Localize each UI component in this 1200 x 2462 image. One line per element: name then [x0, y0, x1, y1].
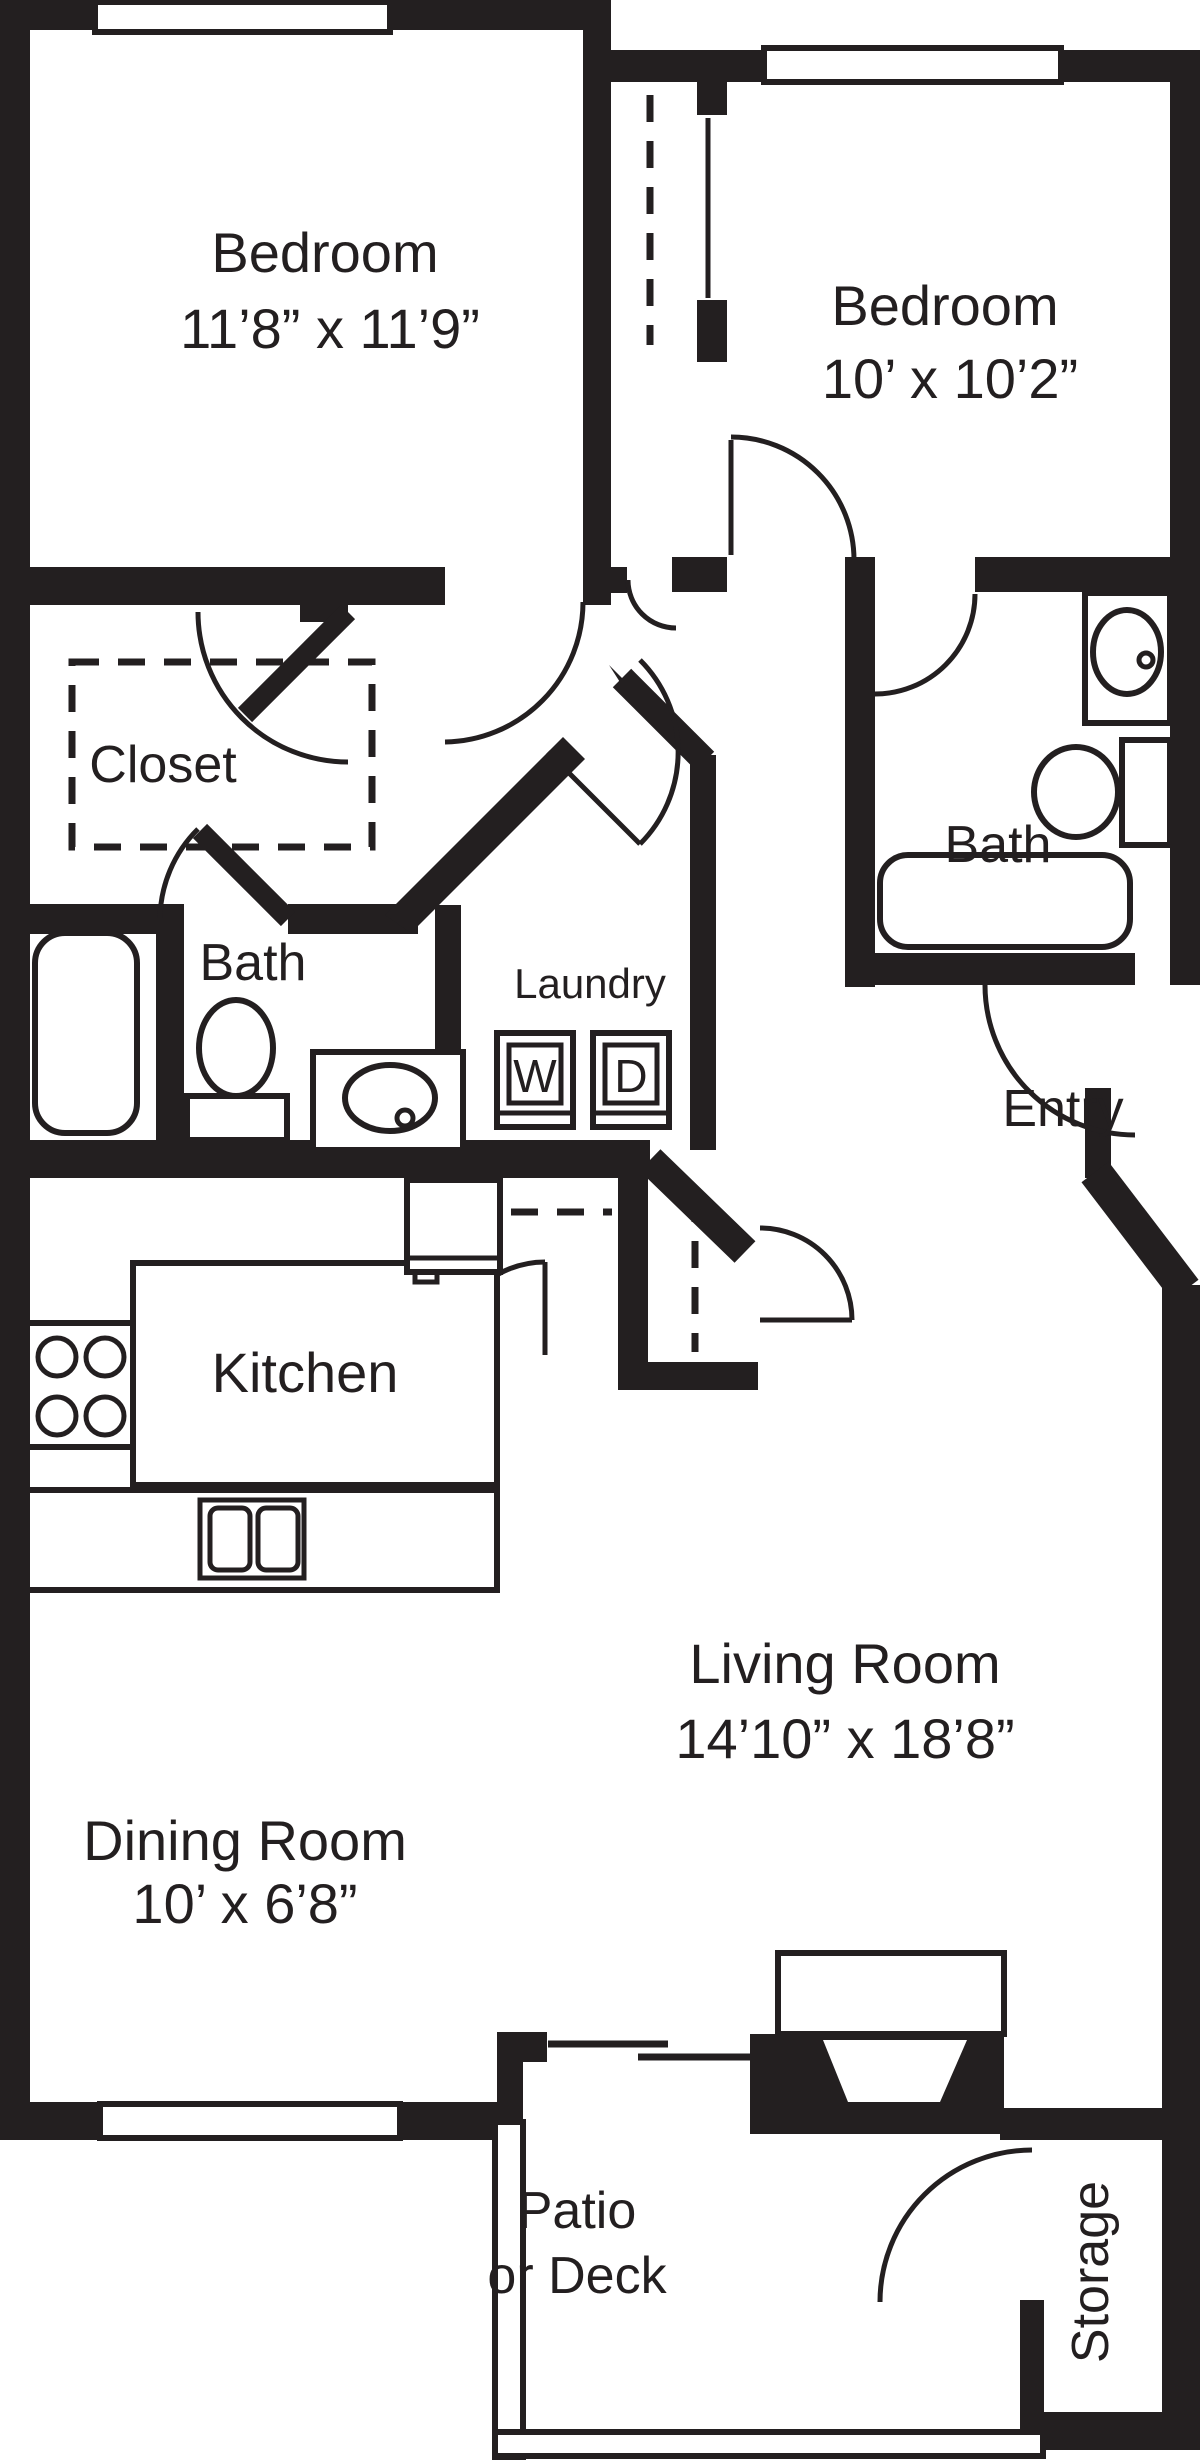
- toilet-tank-icon: [1122, 740, 1170, 845]
- living-dims: 14’10” x 18’8”: [675, 1707, 1014, 1770]
- bedroom1-label: Bedroom: [211, 221, 438, 284]
- dryer-label: D: [614, 1050, 647, 1102]
- patio-label: Patio: [518, 2182, 637, 2240]
- kitchen-sink-icon: [27, 1490, 497, 1590]
- bath2-label: Bath: [945, 816, 1052, 874]
- laundry-door-leaf: [548, 752, 640, 844]
- window-bedroom2: [764, 48, 1061, 82]
- sink-basin-icon: [345, 1065, 435, 1131]
- refrigerator-icon: [407, 1180, 500, 1282]
- fireplace-icon: [750, 1953, 1004, 2134]
- bedroom1-dims: 11’8” x 11’9”: [180, 297, 480, 360]
- dining-label: Dining Room: [83, 1809, 407, 1872]
- strip-closet-door-arc: [628, 580, 676, 628]
- bedroom2-label: Bedroom: [831, 274, 1058, 337]
- patio-label2: or Deck: [487, 2247, 667, 2305]
- entry-label: Entry: [1002, 1080, 1123, 1138]
- window-dining: [100, 2104, 400, 2138]
- bath2-door-arc: [875, 594, 975, 694]
- storage-door-arc: [880, 2150, 1032, 2302]
- laundry-label: Laundry: [514, 960, 666, 1007]
- storage-label: Storage: [1062, 2181, 1120, 2363]
- patio-bottom-wall: [495, 2432, 1043, 2456]
- window-bedroom1: [95, 2, 390, 32]
- living-label: Living Room: [689, 1632, 1000, 1695]
- entry-closet-door-arc: [760, 1228, 852, 1320]
- toilet-tank-icon: [187, 1096, 287, 1140]
- bathtub-icon: [35, 933, 137, 1133]
- bath1-label: Bath: [200, 934, 307, 992]
- closet-label: Closet: [89, 736, 237, 794]
- bedroom2-door-arc: [731, 437, 854, 560]
- floor-plan-drawing: Bedroom 11’8” x 11’9” Bedroom 10’ x 10’2…: [0, 0, 1200, 2462]
- bedroom2-dims: 10’ x 10’2”: [822, 347, 1078, 410]
- washer-label: W: [513, 1050, 557, 1102]
- bedroom1-door-arc: [445, 602, 583, 742]
- floor-plan-page: Bedroom 11’8” x 11’9” Bedroom 10’ x 10’2…: [0, 0, 1200, 2462]
- stove-icon: [27, 1323, 134, 1447]
- toilet-bowl-icon: [199, 1000, 273, 1096]
- dining-dims: 10’ x 6’8”: [132, 1872, 357, 1935]
- kitchen-label: Kitchen: [212, 1341, 399, 1404]
